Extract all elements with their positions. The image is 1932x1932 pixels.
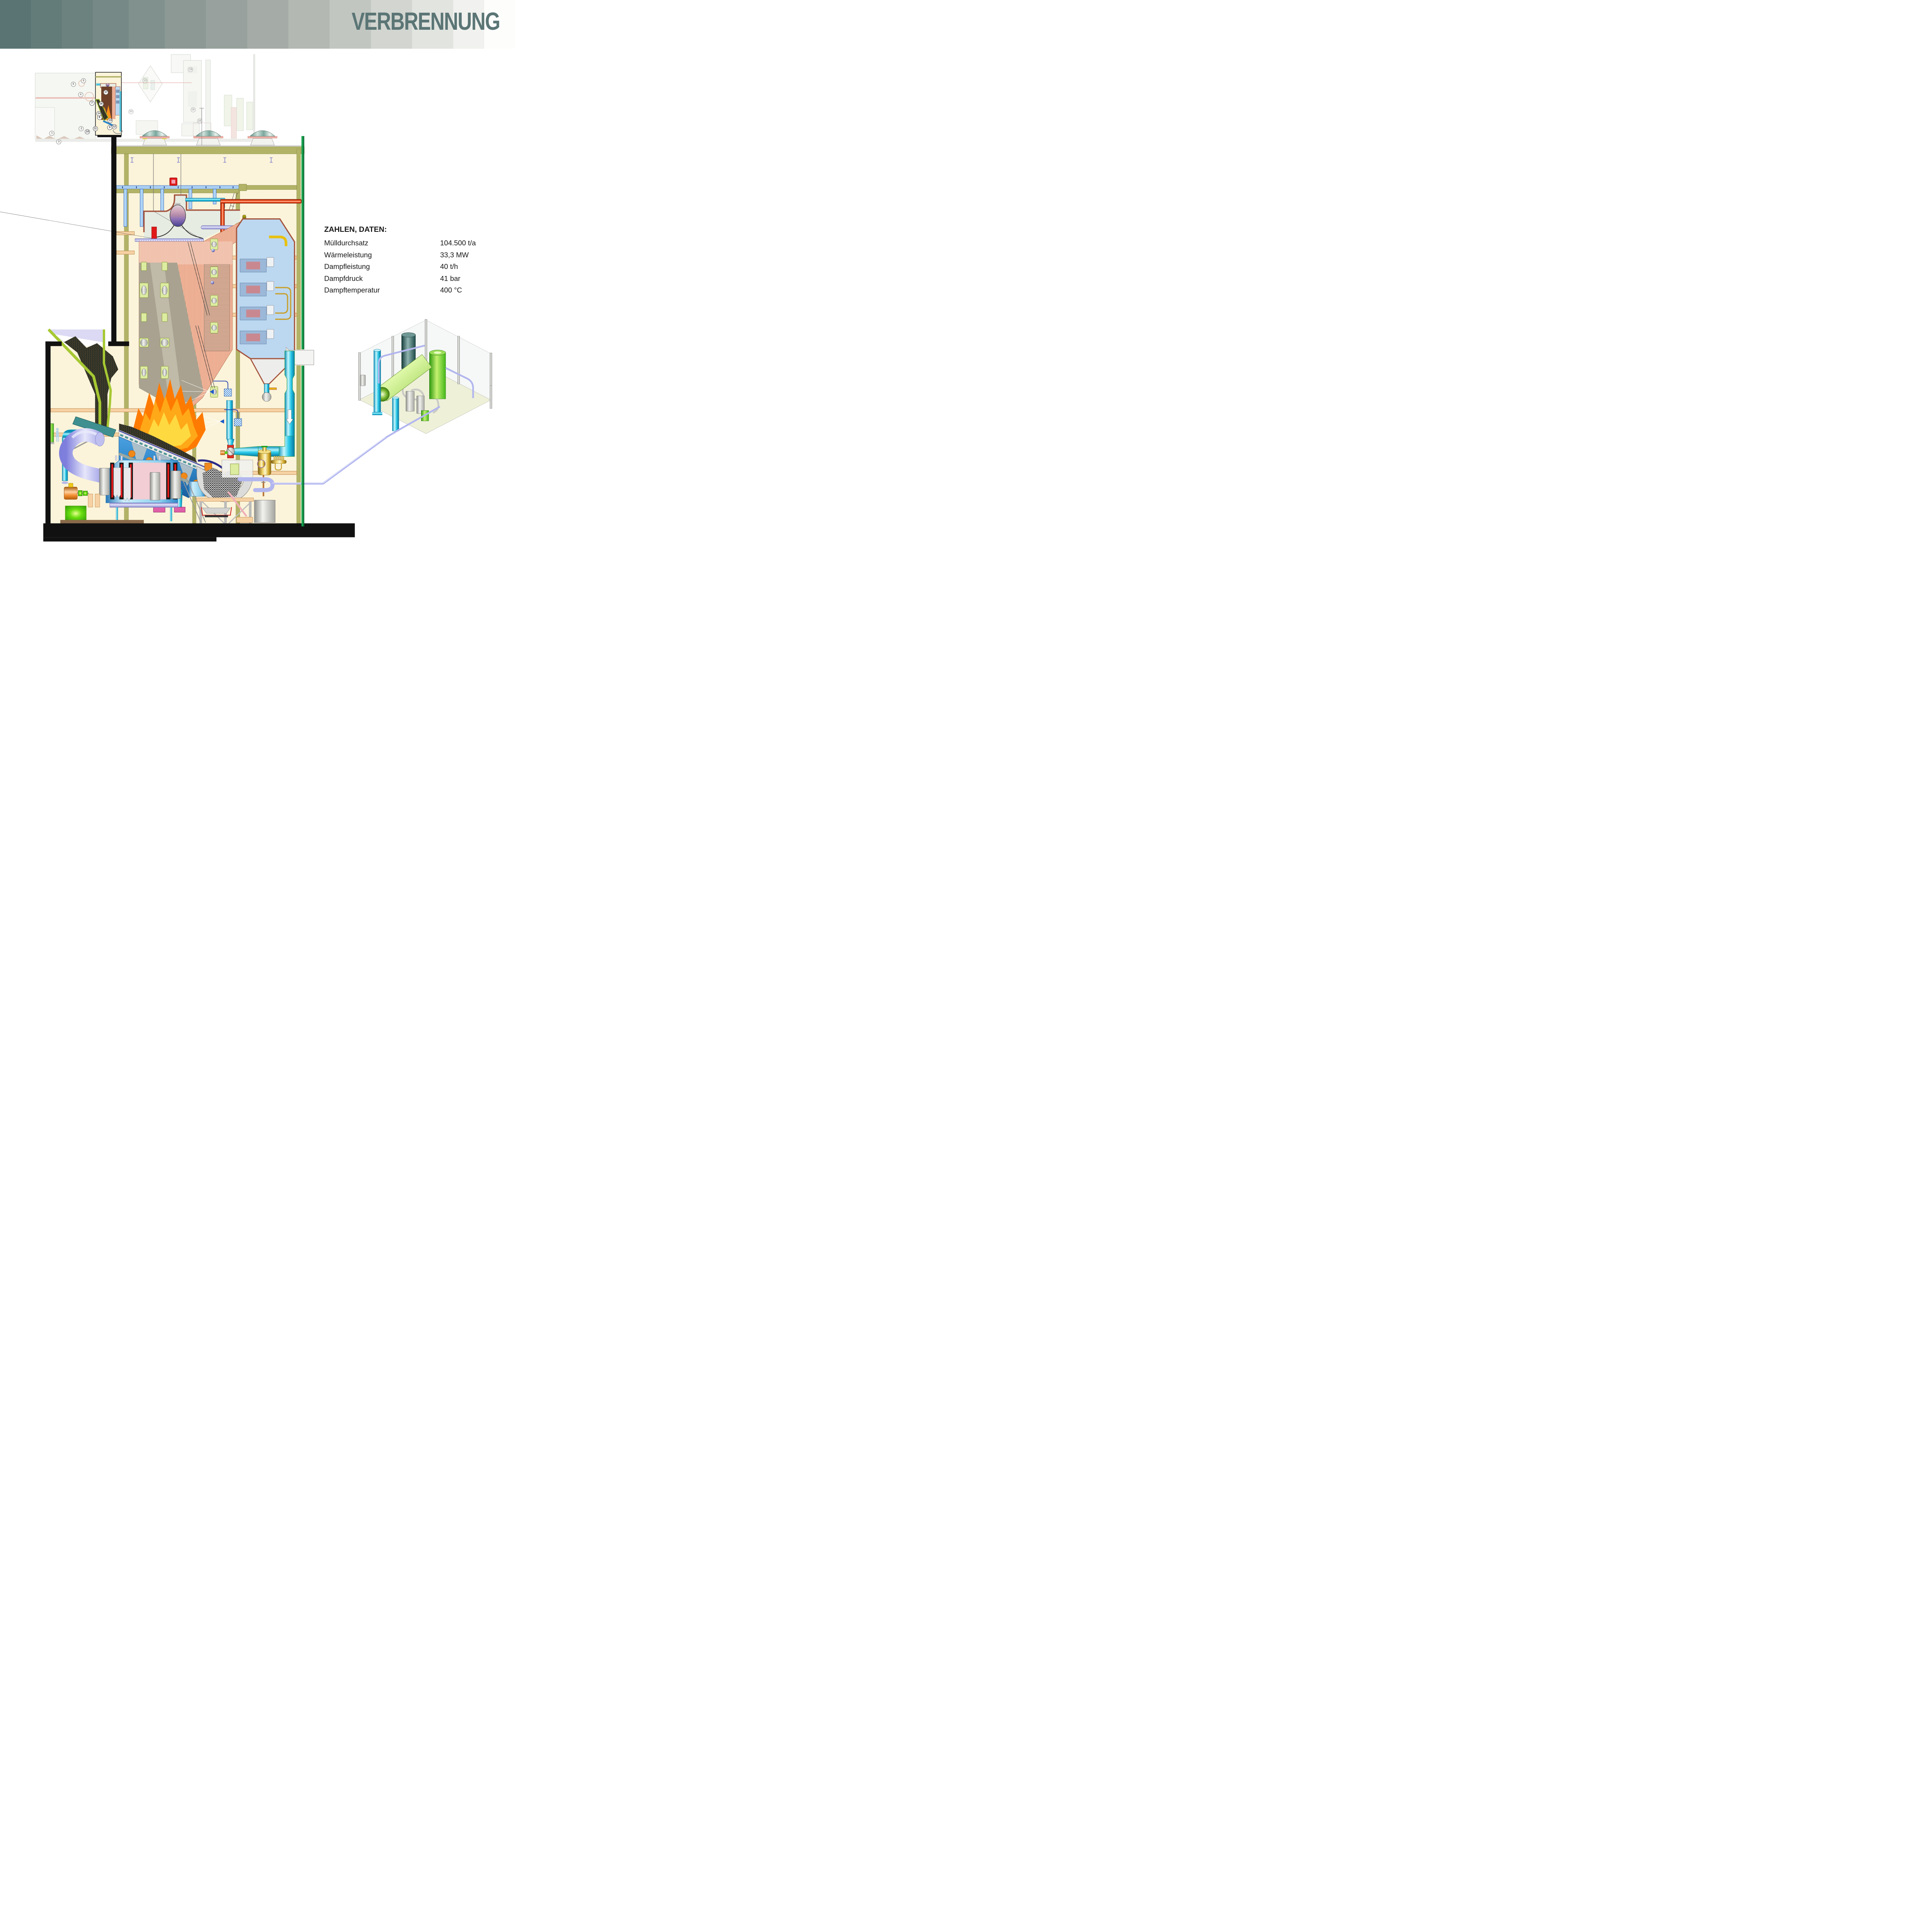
ash-conveyor	[201, 507, 231, 517]
data-row-value: 33,3 MW	[440, 249, 506, 261]
data-row-value: 104.500 t/a	[440, 237, 506, 249]
foundation	[43, 523, 355, 537]
minimap-marker-11: 11	[93, 126, 98, 131]
data-row: Mülldurchsatz104.500 t/a	[324, 237, 506, 249]
data-rows: Mülldurchsatz104.500 t/aWärmeleistung33,…	[324, 237, 506, 296]
verbrennung-poster: VERBRENNUNG	[0, 0, 515, 543]
data-row: Wärmeleistung33,3 MW	[324, 249, 506, 261]
minimap-marker-3: 3	[56, 139, 61, 144]
steam-drum	[170, 205, 186, 226]
isometric-equipment-room	[359, 319, 492, 437]
data-row-label: Mülldurchsatz	[324, 237, 440, 249]
minimap-marker-16: 16	[99, 102, 104, 107]
data-row-value: 41 bar	[440, 273, 506, 285]
data-row: Dampftemperatur400 °C	[324, 284, 506, 296]
fan-motor	[64, 487, 77, 499]
data-row-value: 40 t/h	[440, 261, 506, 273]
saturated-steam-pipe	[185, 198, 225, 201]
data-row-label: Wärmeleistung	[324, 249, 440, 261]
minimap-marker-19: 19	[188, 67, 193, 72]
main-diagram	[0, 108, 386, 541]
minimap-marker-15: 15	[108, 118, 113, 123]
minimap-marker-4: 4	[78, 92, 83, 97]
minimap-marker-12: 12	[112, 124, 117, 129]
minimap-faded-plant	[35, 54, 255, 142]
timber-base	[60, 520, 144, 524]
minimap-marker-28: 28	[197, 119, 202, 124]
minimap-marker-13: 13	[143, 78, 148, 83]
roof-band	[111, 147, 304, 154]
data-panel-title: ZAHLEN, DATEN:	[324, 225, 506, 234]
data-panel: ZAHLEN, DATEN: Mülldurchsatz104.500 t/aW…	[324, 225, 506, 296]
data-row: Dampfdruck41 bar	[324, 273, 506, 285]
minimap-marker-2: 2	[79, 126, 84, 131]
data-row-label: Dampftemperatur	[324, 284, 440, 296]
minimap-marker-5: 5	[81, 78, 86, 83]
cyan-column-short	[392, 398, 399, 431]
minimap-marker-14: 14	[97, 111, 102, 116]
minimap-marker-1: 1	[49, 131, 54, 136]
minimap-marker-20: 20	[128, 109, 133, 114]
furnace-ceiling	[135, 239, 204, 241]
minimap-marker-7: 7	[90, 101, 95, 106]
roof-slab	[111, 145, 304, 147]
minimap-marker-10: 10	[85, 129, 90, 134]
minimap	[35, 54, 255, 142]
green-tank	[429, 352, 446, 399]
data-row-value: 400 °C	[440, 284, 506, 296]
data-row-label: Dampfleistung	[324, 261, 440, 273]
minimap-marker-18: 18	[190, 107, 196, 112]
data-row: Dampfleistung40 t/h	[324, 261, 506, 273]
ash-container	[254, 500, 275, 522]
minimap-marker-17: 17	[104, 90, 109, 95]
data-row-label: Dampfdruck	[324, 273, 440, 285]
red-cabinet	[152, 227, 157, 239]
minimap-marker-6: 6	[71, 82, 76, 87]
